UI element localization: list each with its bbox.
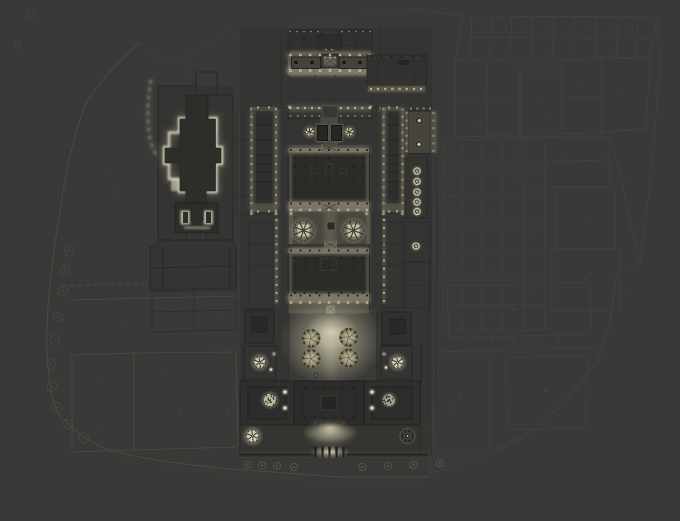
svg-text:dz: dz — [227, 411, 231, 415]
svg-text:dz: dz — [512, 307, 516, 311]
svg-text:7.52: 7.52 — [294, 41, 300, 45]
svg-text:dz: dz — [126, 321, 130, 325]
svg-text:dz: dz — [178, 411, 182, 415]
svg-text:4.5: 4.5 — [61, 334, 65, 337]
svg-text:dz: dz — [217, 315, 221, 319]
svg-text:7.52: 7.52 — [345, 41, 351, 45]
svg-text:dz: dz — [164, 369, 168, 373]
svg-text:4.5: 4.5 — [74, 418, 78, 421]
svg-text:dz: dz — [544, 389, 548, 393]
svg-text:4.5: 4.5 — [58, 381, 62, 384]
svg-text:dz: dz — [223, 355, 227, 359]
svg-text:4.5: 4.5 — [75, 245, 79, 248]
svg-text:dz: dz — [102, 375, 106, 379]
svg-text:dz: dz — [102, 423, 106, 427]
svg-text:dz: dz — [458, 395, 462, 399]
